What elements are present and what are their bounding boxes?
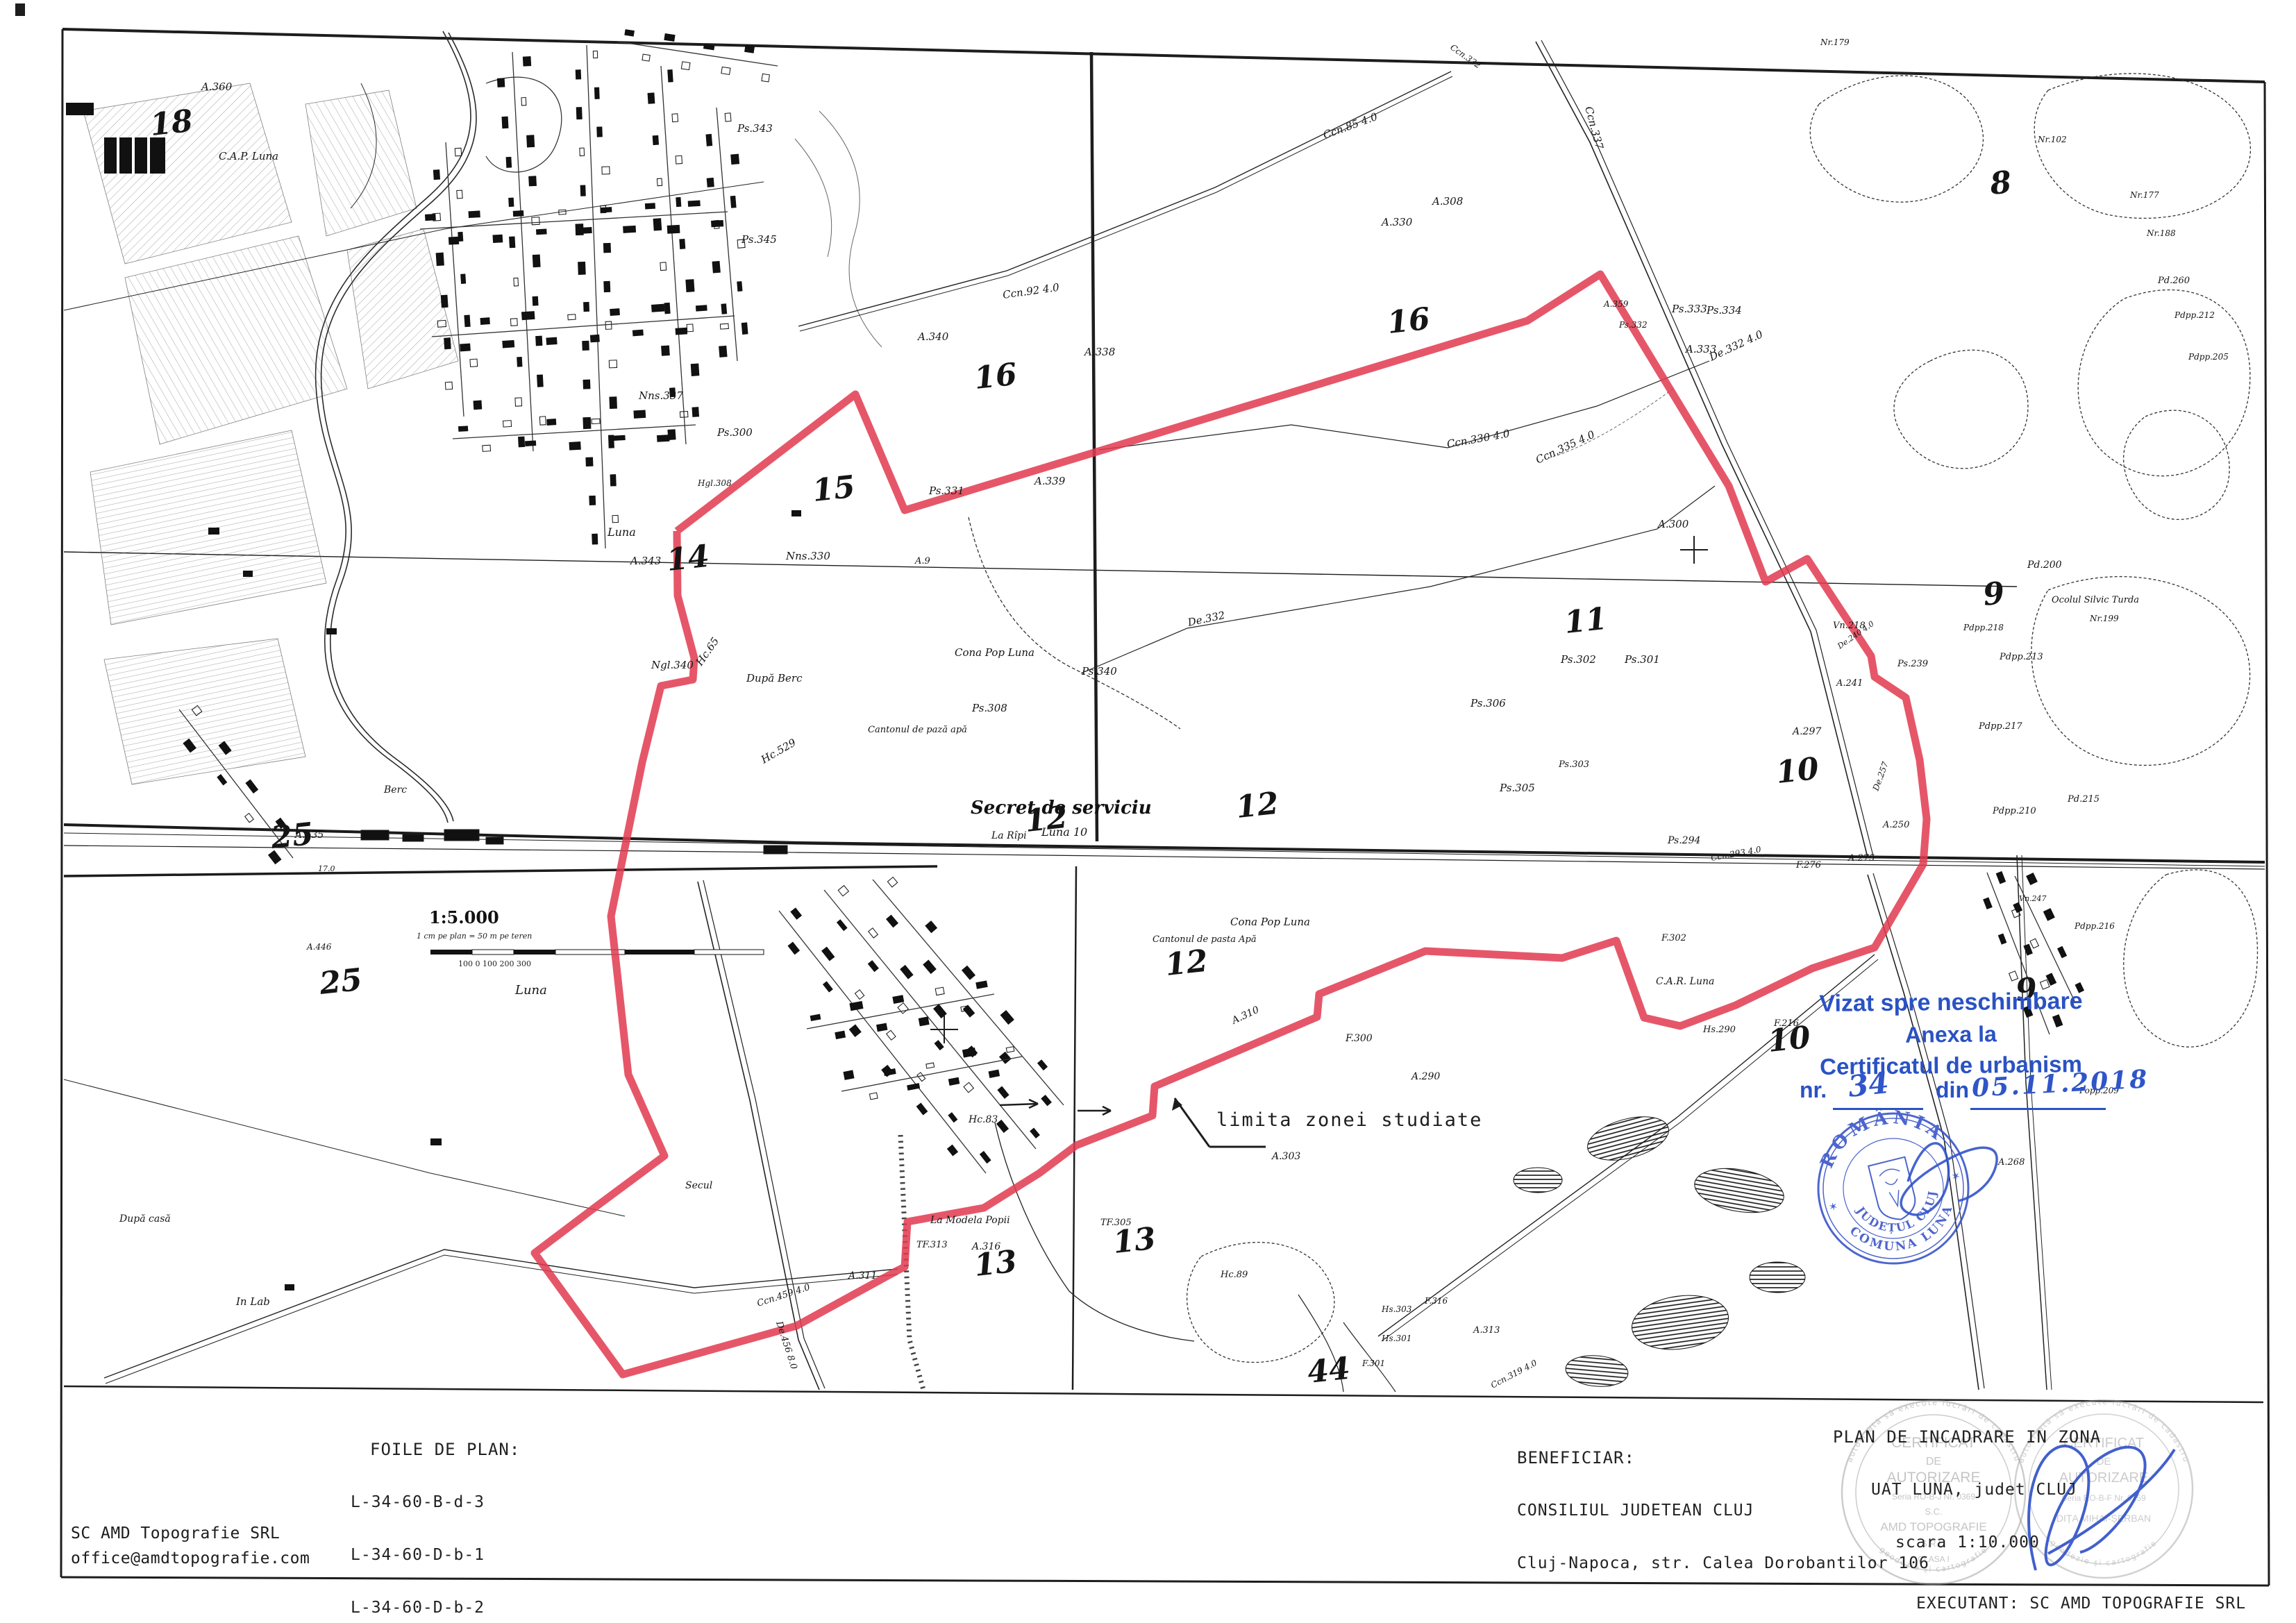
map-label: Ps.308 [971, 702, 1007, 714]
house [712, 261, 720, 273]
house [589, 496, 596, 505]
house [517, 357, 522, 367]
map-label: După casă [119, 1213, 171, 1225]
map-label: A.313 [1473, 1325, 1500, 1336]
map-label: Pdpp.218 [1963, 623, 2004, 632]
house [686, 280, 694, 292]
map-label: La Modela Popii [930, 1215, 1010, 1226]
viza-line2: Anexa la [1805, 1020, 2097, 1049]
house [510, 319, 517, 326]
house [916, 1103, 927, 1115]
house [855, 990, 864, 1000]
map-label: Luna [514, 983, 547, 998]
sheet-number: 14 [665, 539, 711, 578]
map-label: Ccn.337 [1582, 105, 1606, 151]
house [594, 87, 599, 99]
house [580, 148, 585, 155]
house [737, 282, 742, 292]
map-label: La Rîpi [991, 830, 1027, 841]
house [610, 397, 617, 409]
house [527, 135, 535, 147]
foile-title: FOILE DE PLAN: [351, 1438, 520, 1461]
map-label: Hs.290 [1702, 1025, 1736, 1035]
house [869, 1093, 878, 1100]
house [810, 1014, 821, 1020]
sheet-number: 16 [973, 357, 1019, 396]
house [537, 229, 547, 235]
viza-date-underline [1970, 1108, 2106, 1110]
house [706, 134, 712, 146]
house [989, 1070, 999, 1077]
house [849, 1025, 861, 1036]
plan-title: PLAN DE INCADRARE IN ZONA [1833, 1426, 2263, 1449]
house [576, 108, 582, 119]
map-label: A.303 [1271, 1151, 1300, 1162]
flow-arrows [1000, 1100, 1111, 1115]
house [919, 1017, 929, 1026]
sheet-number: 10 [1775, 751, 1821, 791]
house [925, 921, 937, 933]
village-street [717, 108, 737, 361]
map-label: Luna [607, 525, 636, 539]
map-label: Ps.294 [1667, 835, 1700, 846]
scale-bar [430, 950, 764, 955]
sheet-number: 25 [317, 962, 364, 1002]
house [586, 457, 593, 466]
house [519, 437, 525, 447]
map-label: Nr.177 [2129, 190, 2159, 200]
house [681, 62, 690, 70]
house [948, 1077, 959, 1085]
house [583, 341, 589, 350]
plan-title-block: PLAN DE INCADRARE IN ZONA UAT LUNA, jude… [1833, 1395, 2263, 1623]
house [835, 1031, 846, 1038]
map-label: A.311 [847, 1270, 877, 1281]
house [1996, 872, 2005, 884]
inset-scale-caption: 1 cm pe plan = 50 m pe teren [417, 932, 532, 941]
house [521, 97, 526, 105]
house [245, 814, 254, 823]
map-label: Ps.333 [1671, 303, 1707, 315]
house [461, 274, 466, 283]
map-label: Hs.301 [1381, 1334, 1411, 1343]
house [893, 995, 904, 1004]
house [583, 417, 591, 428]
map-label: Hc.89 [1220, 1270, 1248, 1280]
house [601, 208, 612, 212]
house [2027, 873, 2037, 885]
house [433, 170, 439, 180]
village-street [432, 316, 735, 337]
map-label: A.330 [1380, 216, 1413, 228]
legend-label: limita zonei studiate [1216, 1109, 1482, 1131]
map-label: Ps.239 [1897, 659, 1928, 669]
house [521, 312, 534, 320]
house [523, 57, 530, 67]
village-street [661, 66, 686, 444]
house [1041, 1095, 1051, 1106]
map-label: Pd.215 [2067, 794, 2100, 805]
house [609, 360, 617, 368]
map-label: Ps.331 [928, 485, 964, 497]
map-label: A.290 [1410, 1071, 1440, 1082]
sheet-id: L-34-60-D-b-1 [351, 1545, 520, 1567]
house [907, 1084, 920, 1091]
house [444, 338, 451, 349]
map-label: Ps.306 [1470, 697, 1506, 709]
house [497, 78, 504, 87]
house [470, 359, 478, 367]
house [590, 335, 599, 342]
map-label: Ps.303 [1558, 759, 1589, 770]
stamp-star-left: ✶ [1827, 1199, 1840, 1214]
house [597, 127, 603, 137]
house [426, 215, 436, 221]
house [455, 148, 461, 156]
house [657, 435, 669, 442]
map-label: Secul [685, 1180, 712, 1191]
house [788, 942, 799, 954]
house [900, 966, 913, 979]
map-label: F.276 [1795, 860, 1821, 871]
company-name: SC AMD Topografie SRL [71, 1522, 310, 1547]
inset-scale-ticks: 100 0 100 200 300 [458, 959, 531, 968]
house [1000, 1011, 1014, 1025]
house [935, 1041, 944, 1050]
map-label: A.250 [1882, 820, 1909, 830]
map-label: A.340 [916, 330, 949, 343]
house [868, 961, 878, 972]
map-label: A.275 [1847, 853, 1875, 864]
stamp-star-right: ✶ [1950, 1168, 1962, 1184]
foile-de-plan-block: FOILE DE PLAN: L-34-60-B-d-3 L-34-60-D-b… [351, 1408, 520, 1623]
house [2030, 939, 2038, 948]
sheet-number: 16 [1386, 301, 1432, 341]
house [838, 886, 848, 896]
house [664, 34, 675, 42]
map-label: A.338 [1083, 346, 1115, 358]
house [445, 382, 452, 389]
house [1030, 1128, 1039, 1138]
map-label: F.300 [1345, 1033, 1373, 1044]
plan-uat: UAT LUNA, judet CLUJ [1833, 1479, 2263, 1502]
house [604, 281, 610, 292]
house [731, 154, 739, 164]
house [436, 253, 444, 265]
map-label: Hs.303 [1381, 1304, 1412, 1314]
house [844, 1070, 854, 1079]
house [592, 534, 598, 544]
map-label: A.297 [1791, 726, 1821, 737]
house [593, 51, 597, 58]
house [603, 243, 610, 252]
house [584, 302, 589, 311]
company-block: SC AMD Topografie SRL office@amdtopograf… [71, 1522, 310, 1571]
village-street [779, 911, 986, 1173]
map-label: A.308 [1431, 195, 1463, 208]
viza-nr-value: 34 [1847, 1066, 1891, 1104]
map-label: Cona Pop Luna [955, 646, 1034, 659]
house [642, 54, 650, 61]
house [506, 157, 512, 167]
house [469, 211, 480, 218]
contour-lines [795, 111, 1673, 729]
village-street [420, 212, 728, 229]
house [725, 113, 731, 121]
sheet-number: 15 [811, 469, 857, 509]
house [2024, 944, 2032, 955]
house [998, 1086, 1009, 1098]
map-label: C.A.P. Luna [219, 150, 278, 162]
secret-note: Secret de serviciu [971, 798, 1152, 818]
house [547, 419, 556, 426]
house [576, 70, 580, 79]
house [662, 346, 670, 355]
map-label: Pdpp.205 [2188, 352, 2229, 362]
map-label: Ccn.92 4.0 [1002, 281, 1060, 301]
map-label: A.446 [306, 942, 332, 952]
house [513, 211, 523, 217]
house [583, 380, 590, 389]
house [474, 401, 482, 410]
map-label: Ps.332 [1618, 320, 1648, 330]
house [948, 1145, 958, 1155]
house [653, 219, 662, 230]
map-label: In Lab [235, 1295, 270, 1308]
map-label: Ps.300 [717, 426, 753, 439]
house [696, 305, 707, 311]
map-label: Nr.199 [2089, 614, 2119, 623]
house [688, 201, 700, 206]
house [657, 178, 662, 186]
house [762, 74, 769, 82]
house [529, 176, 537, 186]
map-label: A.339 [1033, 475, 1066, 487]
map-label: Pdpp.210 [1992, 806, 2036, 816]
map-label: Pdpp.216 [2074, 921, 2115, 931]
house [837, 920, 847, 931]
map-label: Nns.330 [785, 550, 830, 562]
map-label: A.359 [1603, 299, 1629, 309]
map-label: Vn.247 [2019, 894, 2047, 903]
house [536, 336, 542, 346]
house [645, 203, 655, 209]
scan-corner-mark [15, 3, 25, 16]
house [721, 304, 727, 314]
village-houses [179, 30, 2084, 1173]
house [997, 1120, 1009, 1133]
house [217, 775, 227, 785]
plan-scale: scara 1:10.000 [1833, 1532, 2263, 1554]
house [509, 198, 514, 206]
house [664, 303, 670, 313]
map-label: Hgl.308 [697, 478, 732, 488]
map-label: Nr.188 [2146, 228, 2176, 238]
viza-nr-label: nr. [1800, 1077, 1827, 1103]
map-label: Ps.302 [1560, 653, 1596, 666]
map-frame [15, 3, 2269, 1586]
house [525, 441, 535, 446]
map-label: De.257 [1870, 760, 1890, 793]
house [605, 321, 612, 329]
house [1000, 1052, 1011, 1064]
map-label: Ccn.335 4.0 [1534, 428, 1597, 466]
house [532, 217, 539, 225]
house [926, 1063, 935, 1068]
map-label: Hc.83 [968, 1114, 998, 1125]
house [887, 1030, 896, 1040]
house [612, 435, 625, 440]
map-label: F.316 [1424, 1296, 1448, 1306]
house [502, 117, 508, 128]
map-label: Nr.179 [1820, 37, 1850, 47]
house [460, 344, 471, 351]
house [602, 167, 610, 174]
map-label: Cantonul de pază apă [868, 725, 967, 735]
village-street [512, 52, 533, 451]
map-label: Ccn.319 4.0 [1489, 1358, 1539, 1390]
house [578, 262, 586, 274]
sheet-number: 44 [1306, 1351, 1352, 1390]
house [676, 197, 681, 206]
map-label: Hc.529 [758, 736, 798, 766]
map-canvas: A.360C.A.P. LunaPs.343Ps.345Ccn.92 4.0A.… [0, 0, 2296, 1623]
house [964, 1082, 973, 1092]
map-label: 17.0 [318, 864, 335, 873]
map-label: A.310 [1229, 1004, 1261, 1027]
company-email: office@amdtopografie.com [71, 1547, 310, 1572]
house [533, 255, 540, 267]
house [976, 981, 987, 989]
map-label: Nr.102 [2037, 135, 2067, 144]
map-label: Pdpp.213 [1999, 652, 2043, 662]
map-label: Ocolul Silvic Turda [2052, 595, 2139, 605]
house [610, 475, 616, 486]
house [612, 515, 618, 522]
house [457, 190, 462, 199]
house [822, 947, 835, 960]
house [667, 225, 680, 233]
village-street [873, 880, 1064, 1105]
house [441, 295, 448, 308]
map-label: După Berc [746, 672, 803, 684]
house [533, 296, 538, 305]
house [720, 323, 728, 329]
map-label: Ps.305 [1499, 782, 1535, 794]
viza-nr-underline [1833, 1108, 1923, 1110]
house [721, 67, 730, 74]
house [680, 239, 685, 249]
house [493, 235, 503, 242]
house [510, 237, 515, 248]
house [1038, 1060, 1048, 1070]
house [923, 960, 936, 973]
house [962, 966, 975, 979]
house [869, 928, 878, 938]
field-hatching [83, 83, 458, 784]
map-label: Ps.345 [741, 233, 777, 246]
map-label: A.360 [200, 81, 233, 93]
house [741, 323, 748, 334]
map-label: Ps.301 [1624, 653, 1660, 666]
house [503, 340, 514, 348]
house [592, 419, 600, 423]
house [691, 364, 699, 376]
house [719, 346, 727, 357]
house [668, 70, 673, 83]
sheet-id: L-34-60-D-b-2 [351, 1597, 520, 1620]
house [745, 45, 755, 53]
house [623, 226, 636, 233]
house [464, 315, 470, 327]
map-label: A.9 [914, 556, 930, 566]
house [515, 398, 522, 406]
house [676, 155, 682, 164]
map-label: Pdpp.217 [1978, 721, 2022, 732]
house [503, 421, 512, 427]
studied-zone-boundary [535, 274, 1927, 1374]
marsh-areas [1514, 1109, 1805, 1388]
house [823, 982, 833, 992]
house [539, 417, 546, 425]
map-label: Pdpp.212 [2174, 310, 2215, 320]
map-label: F.302 [1661, 933, 1686, 943]
house [634, 410, 646, 418]
house [546, 337, 557, 344]
house [1006, 1047, 1014, 1052]
sheet-number: 13 [973, 1244, 1019, 1284]
house [246, 780, 258, 793]
sheet-number: 11 [1563, 601, 1609, 641]
house [676, 328, 687, 335]
map-label: C.A.R. Luna [1656, 976, 1714, 987]
house [2013, 902, 2022, 912]
house [791, 908, 801, 919]
house [935, 987, 944, 995]
house [610, 309, 620, 316]
house [632, 330, 643, 336]
house [458, 426, 467, 432]
sheet-number: 8 [1988, 165, 2013, 202]
house [660, 262, 667, 271]
map-label: Ps.343 [737, 122, 773, 135]
map-label: A.268 [1997, 1157, 2025, 1168]
house [2058, 946, 2067, 957]
map-label: Hc.65 [693, 635, 721, 668]
map-label: Nns.337 [638, 389, 683, 402]
house [653, 135, 658, 144]
map-label: Cona Pop Luna [1230, 916, 1310, 928]
house [730, 196, 736, 208]
sheet-number: 9 [1981, 575, 2006, 613]
house [480, 318, 489, 325]
sheet-number: 18 [149, 103, 194, 143]
house [2046, 973, 2056, 985]
sheet-id: L-34-60-B-d-3 [351, 1492, 520, 1514]
viza-din-label: din [1936, 1077, 1969, 1103]
village-street [587, 45, 605, 548]
map-label: Ccn.85 4.0 [1321, 110, 1380, 142]
house [569, 442, 580, 451]
map-label: Ccn.332 [1448, 42, 1482, 70]
map-label: Ps.334 [1706, 304, 1742, 317]
map-label: TF.313 [916, 1240, 948, 1250]
plan-executant: EXECUTANT: SC AMD TOPOGRAFIE SRL [1833, 1593, 2263, 1615]
house [1984, 898, 1992, 909]
house [652, 304, 664, 312]
inset-scale: 1:5.000 [429, 907, 499, 927]
house [2043, 909, 2054, 920]
